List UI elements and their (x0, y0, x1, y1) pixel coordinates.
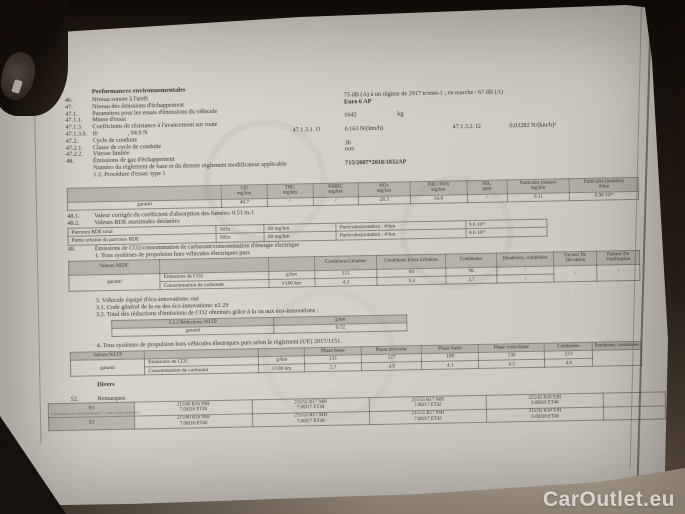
table-header-cell: Conditions Urbaines (314, 255, 377, 270)
table-cell: l/100 km (259, 364, 305, 373)
table-cell (593, 349, 642, 366)
table-header-cell: NMHCmg/km (313, 183, 359, 198)
table-cell: garanti (70, 359, 145, 377)
table-cell: 60 mg/km (264, 231, 336, 241)
table-header-cell: THCmg/km (267, 184, 313, 199)
table-cell (603, 392, 665, 407)
table-cell: 34.8 (410, 194, 467, 203)
table-header-cell: NOxmg/km (358, 182, 410, 197)
table-cell: 215/55 R17 94H7.00J17 ET42 (369, 409, 486, 425)
table-header-cell: Conditions Extra Urbaines (377, 254, 446, 269)
table-cell: 4.8 (544, 358, 593, 367)
table-header-cell: Facteur De Vérification (597, 250, 640, 265)
table-cell: Consommation de carburant (145, 365, 259, 375)
table-cell: / (467, 194, 507, 203)
table-cell: garanti (69, 273, 161, 291)
table-cell: l/100 km (269, 279, 315, 288)
table-cell (604, 405, 666, 420)
table-cell: 4.1 (422, 361, 479, 370)
site-watermark: CarOutlet.eu (543, 488, 675, 512)
table-header-cell: COmg/km (221, 185, 267, 200)
table-cell: / (497, 274, 554, 283)
table-header-cell: Combinées (445, 253, 497, 268)
table-cell: 4.5 (479, 359, 545, 369)
table-header-cell: Pondérées, combinées (497, 252, 554, 267)
table-cell: 215/60 R16 99H7.00J16 ET40 (135, 413, 252, 429)
table-cell: 46.7 (222, 198, 268, 207)
table-cell: 4.2 (314, 277, 377, 286)
table-cell: 5.7 (305, 363, 362, 372)
table-header-cell: Facteur De Déviation (554, 251, 597, 266)
table-header-cell: Particules (nombre)#/km (569, 177, 638, 192)
table-header-cell: NH₃ppm (467, 180, 507, 195)
table-cell: / (313, 197, 359, 206)
table-cell: 215/45 R18 93H6.00J18 ET46 (486, 407, 603, 423)
document-content: Performances environnementales 46.Niveau… (63, 2, 652, 513)
table-cell: 215/55 R17 94H7.00J17 ET40 (252, 411, 369, 427)
table-cell: 4.9 (362, 362, 422, 371)
table-cell: / (267, 197, 313, 206)
remarques-number: 52. (71, 395, 79, 402)
table-cell: 0.11 (507, 192, 570, 201)
table-cell: 3.7 (446, 275, 498, 284)
table-cell: 0.72 (274, 323, 407, 334)
doc-table: 3.2.2 Réductions WLTPg/kmgaranti0.72 (111, 314, 407, 337)
table-cell: 28.3 (359, 196, 411, 205)
sheet-edge-line (34, 95, 42, 443)
environmental-lines: 46.Niveau sonore à l'arrêt75 dB (A) à un… (65, 86, 646, 179)
divers-label: Divers (97, 381, 114, 388)
table-cell: E2 (49, 416, 136, 431)
paper-document: Performances environnementales 46.Niveau… (0, 1, 685, 514)
table-cell: / (597, 264, 640, 281)
table-cell: 6.6 10¹¹ (466, 227, 548, 237)
table-cell: / (554, 265, 597, 282)
table-cell: NOx (216, 233, 264, 242)
table-cell: garanti (67, 199, 221, 210)
table-cell: 3.4 (377, 276, 446, 286)
photo-scene: Performances environnementales 46.Niveau… (0, 0, 685, 514)
doc-text: 48.2. (67, 219, 80, 226)
doc-text: 1.2. Procédure d'essai: type 1 (93, 170, 165, 178)
table-header-cell: Particules (masse)mg/km (507, 179, 570, 194)
table-header-cell (268, 257, 314, 272)
table-header-cell: THC+NOxmg/km (410, 181, 467, 196)
table-cell: garanti (112, 325, 274, 336)
table-cell: 0.98 10¹¹ (570, 191, 639, 201)
doc-text: Valeurs RDE maximales déclarées (94, 217, 180, 226)
table-cell: Consommation de carburant (160, 280, 269, 290)
